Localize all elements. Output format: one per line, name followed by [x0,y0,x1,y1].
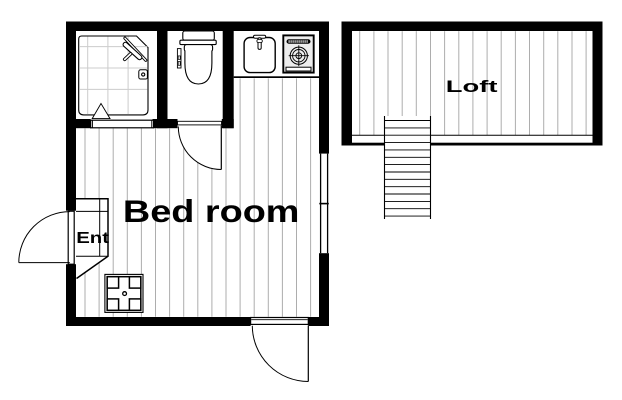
svg-text:Loft: Loft [446,77,498,96]
svg-text:Ent: Ent [76,228,109,246]
svg-text:Bed room: Bed room [123,194,300,229]
